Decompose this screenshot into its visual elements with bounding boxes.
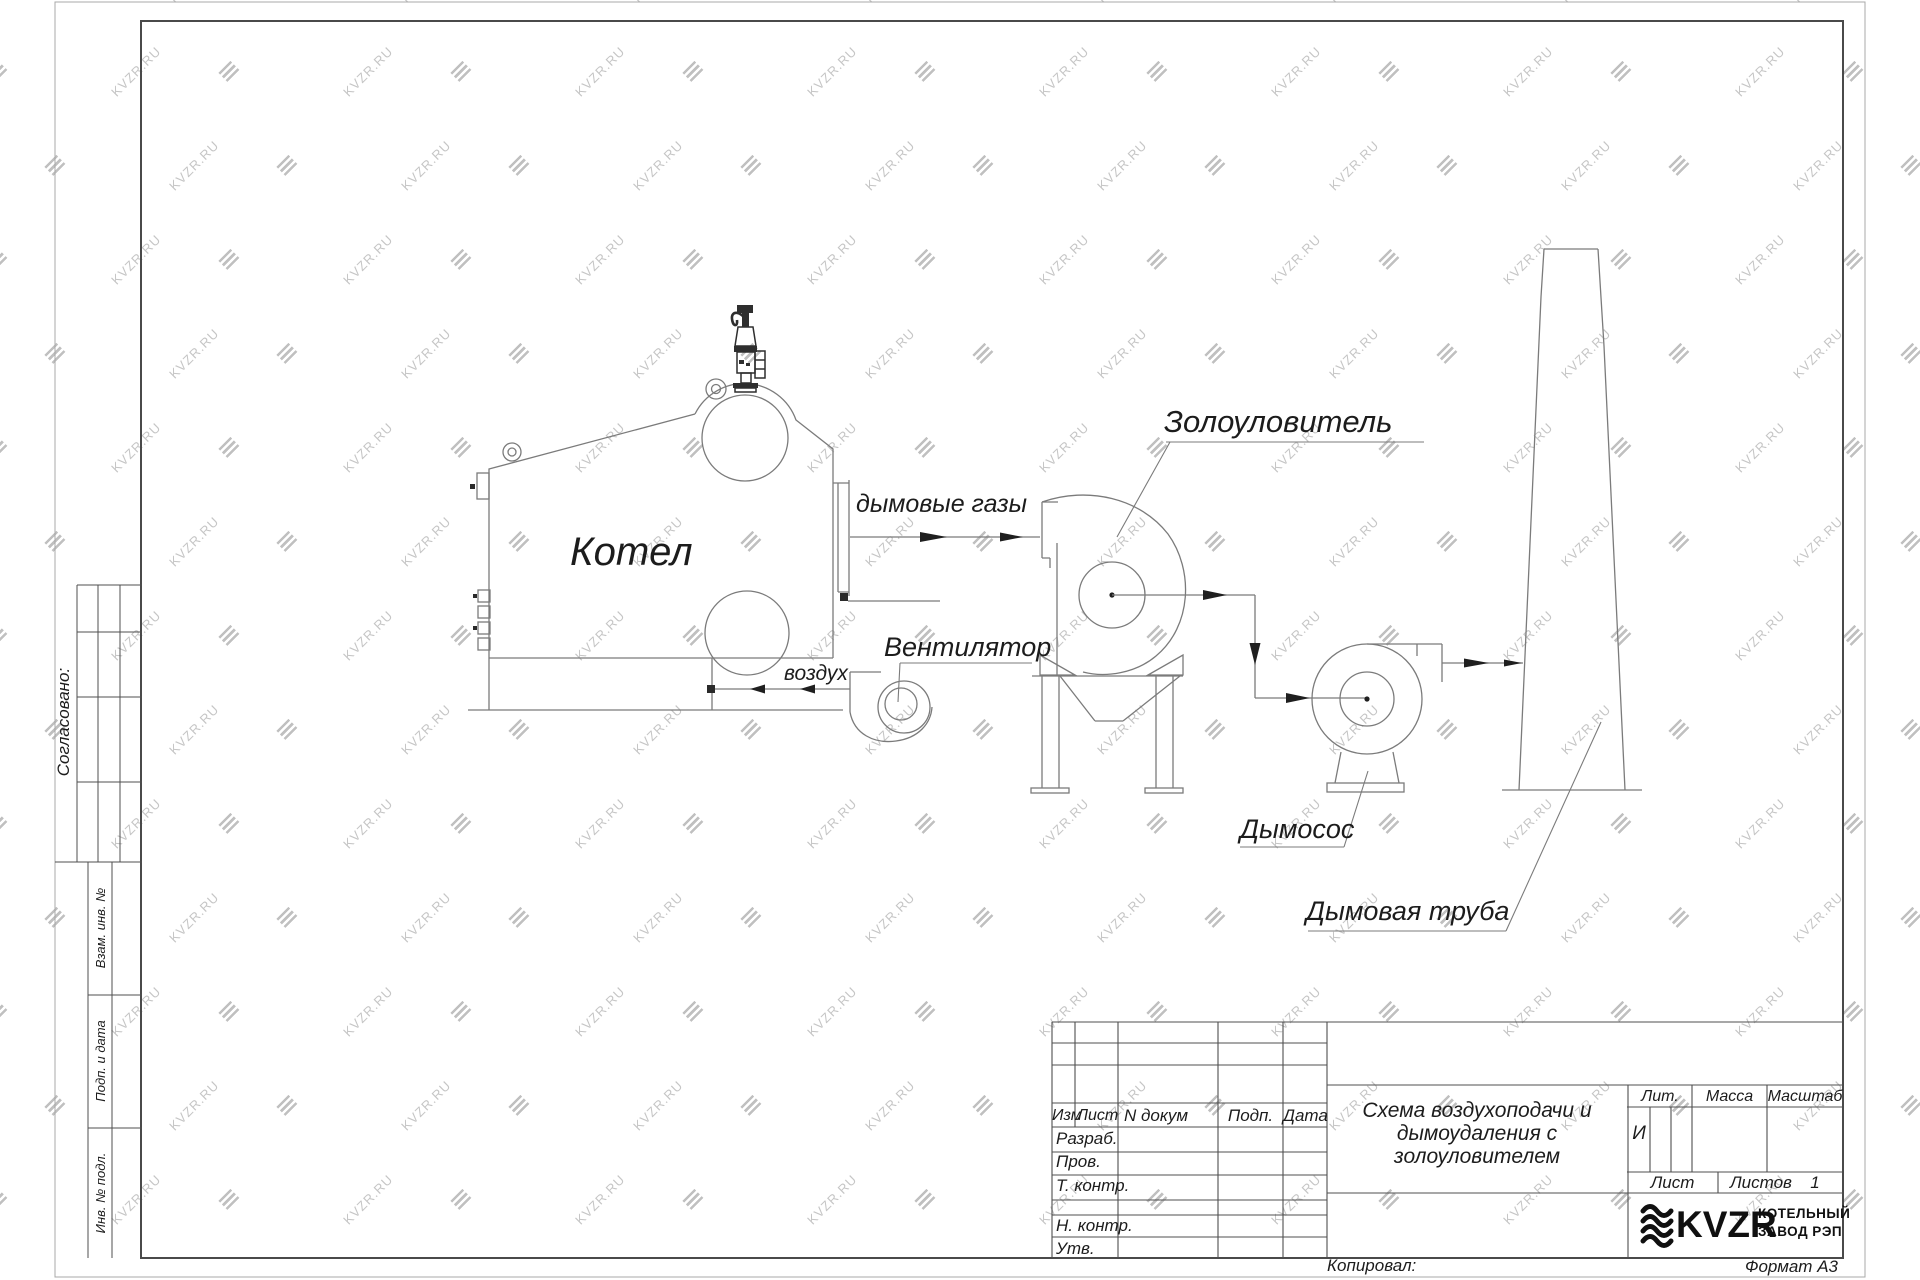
format-label: Формат А3 (1690, 1257, 1838, 1277)
row-t-control: Т. контр. (1056, 1176, 1129, 1196)
sheets-label: Листов (1730, 1173, 1792, 1193)
company-name-line1: КОТЕЛЬНЫЙ (1758, 1206, 1850, 1222)
row-approved: Утв. (1056, 1239, 1095, 1259)
company-name-line2: ЗАВОД РЭП (1758, 1224, 1842, 1240)
chimney-label: Дымовая труба (1306, 896, 1509, 927)
document-title: Схема воздухоподачи и дымоудаления с зол… (1331, 1099, 1623, 1168)
fan-icon (850, 672, 932, 742)
row-checked: Пров. (1056, 1152, 1101, 1172)
agreed-label: Согласовано: (54, 622, 74, 822)
lit-label: Лит. (1628, 1087, 1692, 1107)
drain-fitting (840, 593, 848, 601)
air-label: воздух (784, 662, 848, 686)
boiler-left-fittings (470, 484, 477, 630)
col-sign: Подп. (1218, 1106, 1283, 1126)
row-developed: Разраб. (1056, 1129, 1118, 1149)
flue-gases-label: дымовые газы (856, 490, 1027, 519)
copied-label: Копировал: (1327, 1256, 1416, 1276)
smoke-exhauster-icon (1312, 644, 1442, 792)
lit-value: И (1628, 1124, 1650, 1144)
ash-collector-label: Золоуловитель (1164, 404, 1392, 440)
drawing-sheet: KVZR.RUKVZR.RUKVZR.RUKVZR.RUKVZR.RUKVZR.… (0, 0, 1920, 1280)
orig-inv-label: Инв. № подл. (91, 1093, 111, 1280)
mass-label: Масса (1692, 1087, 1767, 1107)
flue-gas-line (850, 532, 1040, 542)
col-doc: N докум (1124, 1106, 1188, 1126)
ash-collector-icon (1031, 495, 1186, 793)
exhauster-to-chimney-line (1442, 659, 1523, 668)
col-list: Лист (1077, 1106, 1118, 1126)
boiler-label: Котел (570, 530, 693, 575)
scale-label: Масштаб (1767, 1087, 1843, 1107)
sheet-label: Лист (1627, 1173, 1718, 1193)
sheets-value: 1 (1800, 1173, 1830, 1193)
kvzr-logo-icon (1638, 1202, 1676, 1248)
chimney-icon (1502, 249, 1642, 790)
document-title-line2: дымоудаления с (1331, 1122, 1623, 1145)
smoke-exhauster-label: Дымосос (1240, 814, 1354, 845)
fan-label: Вентилятор (884, 632, 1051, 663)
col-date: Дата (1283, 1106, 1327, 1126)
safety-valve-icon (732, 305, 765, 392)
document-title-line3: золоуловителем (1331, 1145, 1623, 1168)
document-title-line1: Схема воздухоподачи и (1331, 1099, 1623, 1122)
cyclone-to-exhauster-line (1112, 590, 1367, 703)
company-logo: KVZR (1638, 1202, 1777, 1248)
row-n-control: Н. контр. (1056, 1216, 1133, 1236)
